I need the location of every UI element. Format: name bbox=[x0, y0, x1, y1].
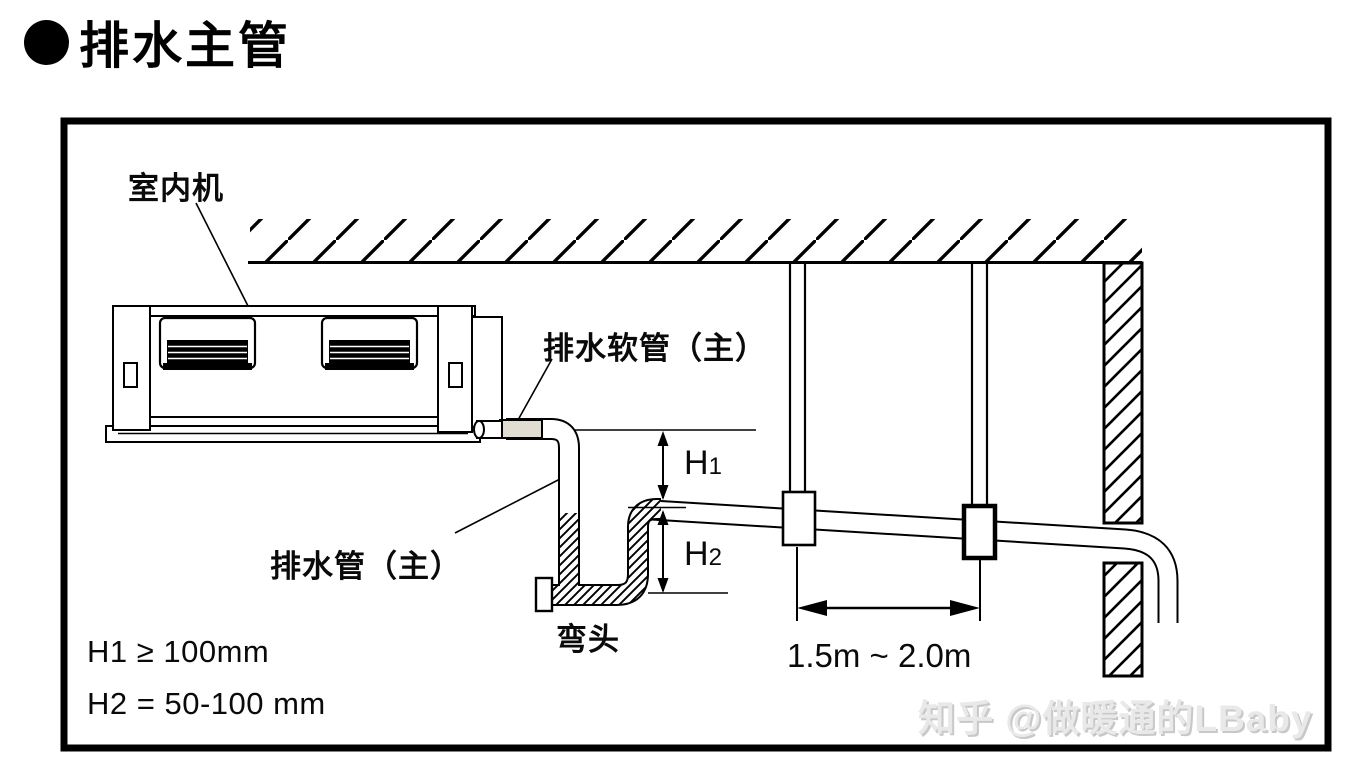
pipe-clamp-1 bbox=[783, 492, 815, 545]
drain-pipe-label: 排水管（主） bbox=[270, 541, 462, 586]
indoor-unit-label: 室内机 bbox=[128, 163, 224, 208]
unit-top-bar bbox=[113, 306, 475, 316]
flex-hose-segment bbox=[500, 420, 542, 438]
fan-inlet-2 bbox=[322, 318, 417, 370]
hanger-spacing-label: 1.5m ~ 2.0m bbox=[787, 637, 971, 675]
h1-rule-note: H1 ≥ 100mm bbox=[87, 634, 269, 670]
watermark: 知乎 @做暖通的LBaby bbox=[918, 688, 1312, 742]
pipe-clamp-2 bbox=[964, 506, 995, 558]
elbow-label: 弯头 bbox=[556, 614, 620, 659]
page: 排水主管 bbox=[0, 0, 1362, 778]
h2-rule-note: H2 = 50-100 mm bbox=[87, 686, 326, 722]
unit-right-hook bbox=[449, 363, 462, 387]
fan-inlet-1 bbox=[160, 318, 255, 370]
unit-rear-panel bbox=[472, 317, 502, 427]
h1-dimension-label: H1 bbox=[684, 444, 722, 483]
ceiling bbox=[248, 219, 1142, 263]
trap-end-cap bbox=[536, 578, 552, 611]
unit-left-hook bbox=[124, 363, 137, 387]
drain-outlet-end bbox=[474, 421, 484, 438]
h2-dimension-label: H2 bbox=[684, 535, 722, 574]
drain-hose-label: 排水软管（主） bbox=[543, 323, 767, 368]
wall bbox=[1104, 263, 1142, 676]
